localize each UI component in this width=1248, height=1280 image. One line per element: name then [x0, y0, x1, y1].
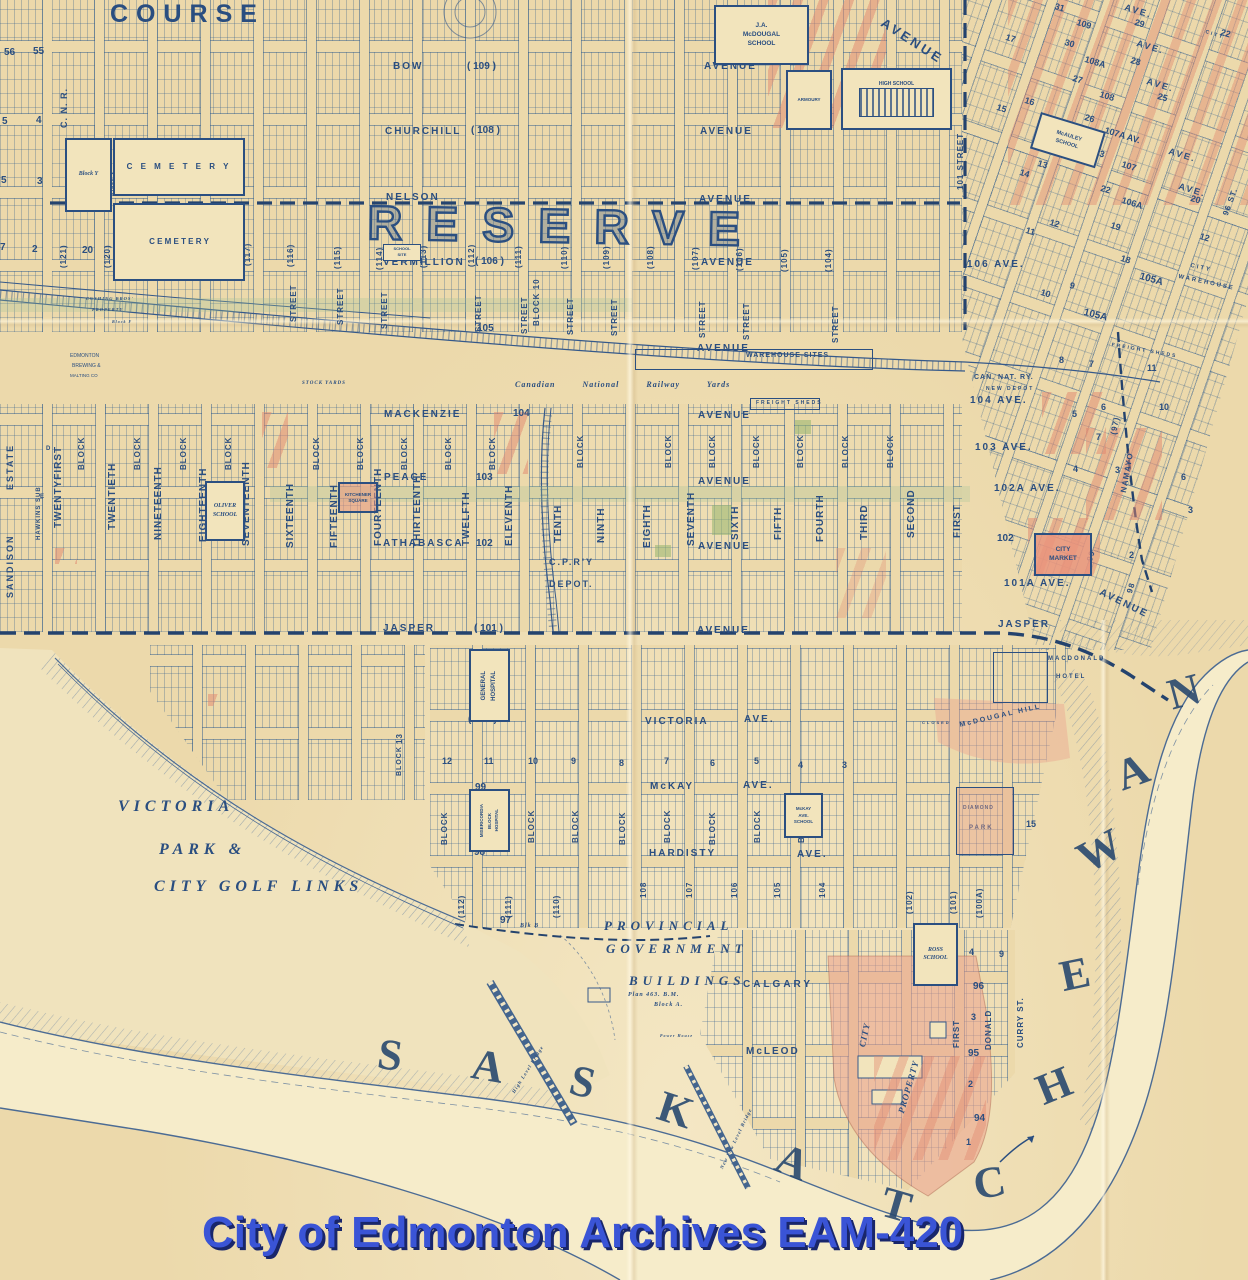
macdonald-hotel — [993, 652, 1048, 703]
map-label-street-36: STREET — [832, 305, 840, 343]
map-label-block-210: BLOCK — [572, 810, 580, 843]
map-label-canadian-national-railway-yards-56: Canadian National Railway Yards — [515, 381, 730, 389]
map-label-5-4: 5 — [2, 117, 8, 127]
map-label-55-3: 55 — [33, 47, 44, 57]
map-label-2-187: 2 — [1129, 551, 1134, 560]
map-label-twelfth-83: TWELFTH — [462, 491, 472, 546]
map-label-street-27: STREET — [290, 284, 298, 322]
map-label-120-12: (120) — [104, 244, 112, 268]
armoury: ARMOURY — [786, 70, 832, 130]
map-label-block-96: BLOCK — [134, 437, 142, 470]
map-label-edmonton-59: EDMONTON — [70, 354, 99, 359]
map-label-mckay-191: McKAY — [650, 782, 694, 792]
map-label-street-28: STREET — [337, 287, 345, 325]
school-site: SCHOOLSITE — [383, 244, 421, 261]
map-label-3-7: 3 — [37, 177, 43, 187]
map-label-park-250: PARK & — [159, 842, 246, 858]
map-label-provincial-243: PROVINCIAL — [604, 919, 733, 932]
map-label-105-25: (105) — [781, 248, 789, 272]
map-label-block-109: BLOCK — [842, 435, 850, 468]
map-label-curry-st-234: CURRY ST. — [1017, 997, 1025, 1048]
map-label-103-ave-125: 103 AVE. — [975, 443, 1033, 453]
map-label-athabasca-69: ATHABASCA — [383, 539, 464, 549]
map-label-block-97: BLOCK — [180, 437, 188, 470]
map-label-block-106: BLOCK — [709, 435, 717, 468]
map-label-block-10-37: BLOCK 10 — [533, 278, 541, 326]
map-label-hotel-260: HOTEL — [1056, 674, 1086, 680]
map-label-102-226: (102) — [906, 890, 914, 914]
map-label-fourth-91: FOURTH — [816, 494, 826, 542]
map-label-avenue-68: AVENUE — [698, 477, 751, 487]
map-label-block-101: BLOCK — [401, 437, 409, 470]
map-label-3-186: 3 — [1188, 506, 1193, 515]
map-label-15-240: 15 — [1026, 820, 1036, 829]
cemetery-north-label: C E M E T E R Y — [127, 162, 232, 172]
map-label-107-222: 107 — [686, 882, 694, 898]
fold-seam-right — [1100, 620, 1110, 1280]
diamond-park — [956, 787, 1014, 855]
city-market: CITYMARKET — [1034, 533, 1092, 576]
map-label-block-100: BLOCK — [357, 437, 365, 470]
map-label-116-14: (116) — [287, 244, 295, 267]
map-label-block-a-247: Block A. — [654, 1002, 683, 1008]
map-label-second-93: SECOND — [907, 489, 917, 538]
map-label-sixth-89: SIXTH — [731, 506, 741, 540]
map-label-nineteenth-76: NINETEENTH — [154, 466, 164, 540]
map-label-11-178: 11 — [1147, 364, 1157, 373]
map-label-112-218: (112) — [458, 895, 466, 918]
fold-seam-center — [626, 0, 638, 1280]
map-label-victoria-249: VICTORIA — [118, 799, 234, 815]
map-label-street-32: STREET — [567, 297, 575, 335]
map-label-101-227: (101) — [950, 890, 958, 914]
map-label-10-200: 10 — [528, 757, 538, 766]
map-label-block-103: BLOCK — [489, 437, 497, 470]
mcdougal-school-label: J.A. — [756, 22, 768, 30]
map-label-bow-41: BOW — [393, 62, 423, 72]
mckay-ave-school: McKAYAVE.SCHOOL — [784, 793, 823, 838]
map-label-block-212: BLOCK — [664, 810, 672, 843]
map-label-block-216: BLOCK — [396, 746, 403, 776]
misericordia-hospital-label: MISERICORDIA — [479, 804, 484, 837]
map-label-106-223: 106 — [731, 882, 739, 898]
map-label-stock-yards-62: STOCK YARDS — [302, 381, 346, 386]
map-label-106-51: ( 106 ) — [475, 257, 504, 267]
map-label-eighth-87: EIGHTH — [643, 504, 653, 548]
map-label-reserve-49: RESERVE — [367, 200, 764, 255]
map-label-block-108: BLOCK — [797, 435, 805, 468]
map-label-2-9: 2 — [32, 245, 38, 255]
map-label-block-107: BLOCK — [753, 435, 761, 468]
map-label-power-house-256: Power House — [660, 1034, 693, 1038]
map-label-sandison-111: SANDISON — [6, 534, 15, 598]
mckay-ave-school-label: McKAY — [796, 806, 811, 811]
map-label-block-104: BLOCK — [577, 435, 585, 468]
cemetery-south: C E M E T E R Y — [113, 203, 245, 281]
map-label-block-98: BLOCK — [225, 437, 233, 470]
map-label-victoria-188: VICTORIA — [645, 717, 709, 727]
map-label-104-26: (104) — [825, 248, 833, 272]
map-label-104-225: 104 — [819, 882, 827, 898]
map-label-95-230: 95 — [968, 1049, 979, 1059]
map-label-new-depot-123: NEW DEPOT — [986, 387, 1034, 392]
map-label-first-232: FIRST — [953, 1020, 961, 1048]
map-label-7-8: 7 — [0, 243, 6, 253]
map-label-101a-ave-128: 101A AVE. — [1004, 579, 1071, 589]
high-school-building-icon — [859, 88, 934, 117]
map-label-c-n-r-1: C. N. R. — [60, 88, 69, 128]
oliver-school-label: SCHOOL — [213, 512, 237, 519]
map-label-mcleod-242: McLEOD — [746, 1047, 800, 1057]
map-label-twentyfirst-74: TWENTYFIRST — [54, 446, 64, 528]
school-site-label: SITE — [398, 253, 407, 258]
map-label-block-f-38: Block F — [112, 320, 132, 324]
oliver-school-label: OLIVER — [214, 503, 236, 510]
map-label-buildings-245: BUILDINGS — [629, 974, 746, 987]
map-label-avenue-46: AVENUE — [700, 127, 753, 137]
high-school-label: HIGH SCHOOL — [879, 81, 914, 87]
map-label-8-176: 8 — [1059, 356, 1064, 365]
map-label-4-183: 4 — [1073, 465, 1078, 474]
map-label-mackenzie-63: MACKENZIE — [384, 410, 461, 420]
city-market-label: CITY — [1056, 546, 1071, 554]
map-label-seventh-88: SEVENTH — [687, 492, 697, 546]
map-label-block-99: BLOCK — [313, 437, 321, 470]
map-label-street-35: STREET — [743, 302, 751, 340]
cemetery-north: C E M E T E R Y — [113, 138, 245, 196]
map-label-twentieth-75: TWENTIETH — [108, 463, 118, 530]
block-y: Block Y — [65, 138, 112, 212]
map-label-c-p-r-y-72: C.P.R'Y — [549, 558, 594, 567]
map-label-plan-463-b-m-246: Plan 463. B.M. — [628, 992, 680, 998]
map-label-102a-ave-126: 102A AVE. — [994, 484, 1061, 494]
map-label-property-40: PROPERTY — [92, 308, 123, 313]
map-label-ninth-86: NINTH — [597, 507, 607, 543]
map-label-7-182: 7 — [1096, 433, 1101, 442]
map-label-malting-co-61: MALTING CO — [70, 374, 98, 379]
map-label-closed-258: CLOSED — [922, 721, 951, 725]
map-label-111-219: (111) — [505, 895, 513, 918]
map-label-7-177: 7 — [1089, 360, 1094, 369]
map-label-5-205: 5 — [754, 757, 759, 766]
map-label-103-67: 103 — [476, 473, 493, 483]
map-label-street-34: STREET — [699, 300, 707, 338]
map-label-56-2: 56 — [4, 48, 15, 58]
map-label-block-110: BLOCK — [887, 435, 895, 468]
map-label-avenue-71: AVENUE — [698, 542, 751, 552]
kitchener-square: KITCHENERSQUARE — [338, 482, 378, 513]
map-label-brewing-60: BREWING & — [72, 364, 101, 369]
map-label-depot-73: DEPOT. — [549, 580, 594, 589]
map-label-street-29: STREET — [381, 291, 389, 329]
map-label-7-203: 7 — [664, 757, 669, 766]
map-label-third-92: THIRD — [860, 504, 870, 540]
map-label-thirteenth-82: THIRTEENTH — [413, 475, 423, 548]
mckay-ave-school-label: SCHOOL — [794, 819, 813, 824]
kitchener-square-label: KITCHENER — [345, 492, 371, 497]
map-label-street-31: STREET — [521, 296, 529, 334]
map-label-block-211: BLOCK — [619, 812, 627, 845]
map-label-d-114: D — [46, 446, 50, 452]
warehouse-sites-strip — [635, 349, 873, 370]
map-label-9-201: 9 — [571, 757, 576, 766]
map-label-2-238: 2 — [968, 1080, 973, 1089]
map-label-5-6: 5 — [1, 176, 7, 186]
map-label-block-209: BLOCK — [528, 810, 536, 843]
map-label-109-42: ( 109 ) — [467, 62, 496, 72]
general-hospital-label: HOSPITAL — [491, 671, 498, 701]
map-label-10-179: 10 — [1159, 403, 1169, 412]
map-label-94-231: 94 — [974, 1114, 985, 1124]
map-label-hardisty-194: HARDISTY — [649, 849, 716, 859]
map-label-105-224: 105 — [774, 882, 782, 898]
map-label-sixteenth-79: SIXTEENTH — [286, 483, 296, 548]
map-label-102-70: 102 — [476, 539, 493, 549]
map-label-eleventh-84: ELEVENTH — [505, 485, 515, 546]
mcdougal-school-label: SCHOOL — [748, 40, 776, 48]
map-label-6-204: 6 — [710, 759, 715, 768]
cemetery-south-label: C E M E T E R Y — [149, 237, 209, 247]
ross-school-label: ROSS — [928, 947, 943, 954]
map-label-106-ave-129: 106 AVE. — [967, 260, 1025, 270]
map-label-1-239: 1 — [966, 1138, 971, 1147]
map-label-city-golf-links-251: CITY GOLF LINKS — [154, 879, 363, 895]
map-label-estate-112: ESTATE — [6, 444, 15, 490]
map-label-fifth-90: FIFTH — [774, 507, 784, 540]
map-label-3-184: 3 — [1115, 466, 1120, 475]
map-label-11-199: 11 — [484, 757, 494, 766]
map-label-churchill-44: CHURCHILL — [385, 127, 461, 137]
map-label-course-0: COURSE — [110, 2, 265, 27]
map-label-108-221: 108 — [640, 882, 648, 898]
map-label-104-64: 104 — [513, 409, 530, 419]
map-label-ave-189: AVE. — [744, 715, 775, 725]
map-label-12-198: 12 — [442, 757, 452, 766]
general-hospital-label: GENERAL — [481, 671, 488, 700]
map-label-117-13: (117) — [244, 243, 252, 266]
map-label-96-229: 96 — [973, 982, 984, 992]
freight-sheds-strip — [750, 398, 820, 410]
map-canvas: City of Edmonton Archives EAM-420 COURSE… — [0, 0, 1248, 1280]
high-school: HIGH SCHOOL — [841, 68, 952, 130]
map-label-4-206: 4 — [798, 761, 803, 770]
misericordia-hospital: MISERICORDIABLOCKHOSPITAL — [469, 789, 510, 852]
map-label-121-11: (121) — [60, 244, 68, 268]
map-label-jasper-117: JASPER — [383, 624, 435, 634]
map-label-101-street-170: 101 STREET — [957, 133, 965, 190]
mcdougal-school-label: McDOUGAL — [743, 31, 780, 39]
ross-school-label: SCHOOL — [923, 955, 947, 962]
map-label-avenue-65: AVENUE — [698, 411, 751, 421]
map-label-105-53: 105 — [477, 324, 494, 334]
map-label-101-118: ( 101 ) — [474, 624, 503, 634]
map-label-tenth-85: TENTH — [554, 505, 564, 543]
mcdougal-school: J.A.McDOUGALSCHOOL — [714, 5, 809, 65]
map-label-9-236: 9 — [999, 950, 1004, 959]
map-label-calgary-241: CALGARY — [743, 980, 813, 990]
map-label-macdonald-259: MACDONALD — [1048, 656, 1105, 662]
map-label-6-185: 6 — [1181, 473, 1186, 482]
map-label-115-15: (115) — [334, 246, 342, 269]
mckay-ave-school-label: AVE. — [798, 813, 808, 818]
map-label-110-220: (110) — [553, 895, 561, 918]
map-label-block-208: BLOCK — [441, 812, 449, 845]
oliver-school: OLIVERSCHOOL — [205, 481, 245, 541]
map-label-block-213: BLOCK — [709, 812, 717, 845]
map-label-government-244: GOVERNMENT — [606, 942, 748, 955]
map-label-block-214: BLOCK — [754, 810, 762, 843]
map-label-4-235: 4 — [969, 948, 974, 957]
fold-seam-horizontal — [0, 318, 1248, 328]
map-label-street-33: STREET — [611, 298, 619, 336]
kitchener-square-label: SQUARE — [348, 498, 367, 503]
map-label-108-45: ( 108 ) — [471, 126, 500, 136]
map-label-can-nat-ry-122: CAN. NAT. RY. — [974, 374, 1034, 381]
map-label-block-105: BLOCK — [665, 435, 673, 468]
misericordia-hospital-label: HOSPITAL — [494, 809, 499, 831]
ross-school: ROSSSCHOOL — [913, 923, 958, 986]
map-label-block-102: BLOCK — [445, 437, 453, 470]
map-label-jasper-120: JASPER — [998, 620, 1050, 630]
map-label-ave-195: AVE. — [797, 850, 828, 860]
archive-caption: City of Edmonton Archives EAM-420 — [202, 1208, 963, 1258]
map-label-20-10: 20 — [82, 246, 93, 256]
map-label-3-207: 3 — [842, 761, 847, 770]
map-label-donald-233: DONALD — [985, 1010, 993, 1050]
map-label-cushing-bros-39: CUSHING BROS' — [86, 297, 134, 302]
map-label-100a-228: (100A) — [976, 888, 984, 918]
map-label-102-127: 102 — [997, 534, 1014, 544]
map-label-6-180: 6 — [1101, 403, 1106, 412]
armoury-label: ARMOURY — [797, 97, 820, 102]
map-label-blk-b-248: Blk B — [520, 923, 539, 929]
block-y-label: Block Y — [79, 171, 98, 178]
map-label-first-94: FIRST — [953, 504, 963, 538]
misericordia-hospital-label: BLOCK — [487, 813, 492, 829]
map-label-13-217: 13 — [396, 733, 404, 744]
map-label-4-5: 4 — [36, 116, 42, 126]
map-label-e-115: E — [40, 494, 44, 500]
map-label-5-181: 5 — [1072, 410, 1077, 419]
map-label-8-202: 8 — [619, 759, 624, 768]
map-label-block-95: BLOCK — [78, 437, 86, 470]
map-label-3-237: 3 — [971, 1013, 976, 1022]
map-label-avenue-52: AVENUE — [701, 258, 754, 268]
map-label-avenue-119: AVENUE — [697, 626, 750, 636]
map-label-104-ave-124: 104 AVE. — [970, 396, 1028, 406]
city-market-label: MARKET — [1049, 555, 1077, 563]
general-hospital: GENERALHOSPITAL — [469, 649, 510, 722]
map-label-ave-192: AVE. — [743, 781, 774, 791]
